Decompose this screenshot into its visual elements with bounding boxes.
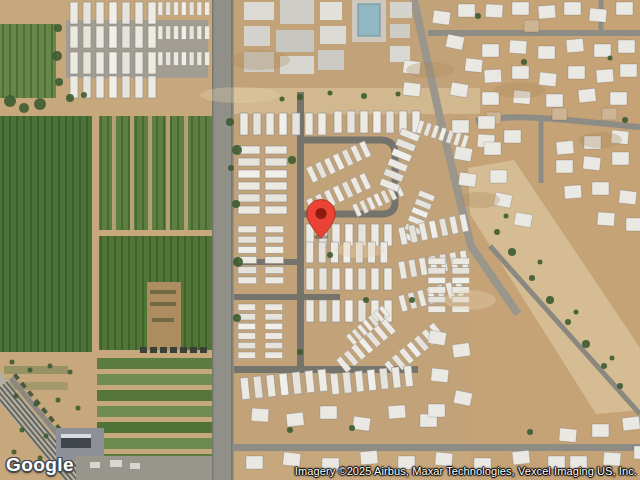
map-marker[interactable]: [306, 199, 336, 239]
main-road: [212, 0, 234, 480]
map-pin-icon: [306, 199, 336, 239]
satellite-imagery: [0, 0, 640, 480]
google-logo[interactable]: Google: [6, 454, 74, 476]
imagery-attribution: Imagery ©2025 Airbus, Maxar Technologies…: [295, 465, 637, 477]
map-viewport[interactable]: Google Imagery ©2025 Airbus, Maxar Techn…: [0, 0, 640, 480]
